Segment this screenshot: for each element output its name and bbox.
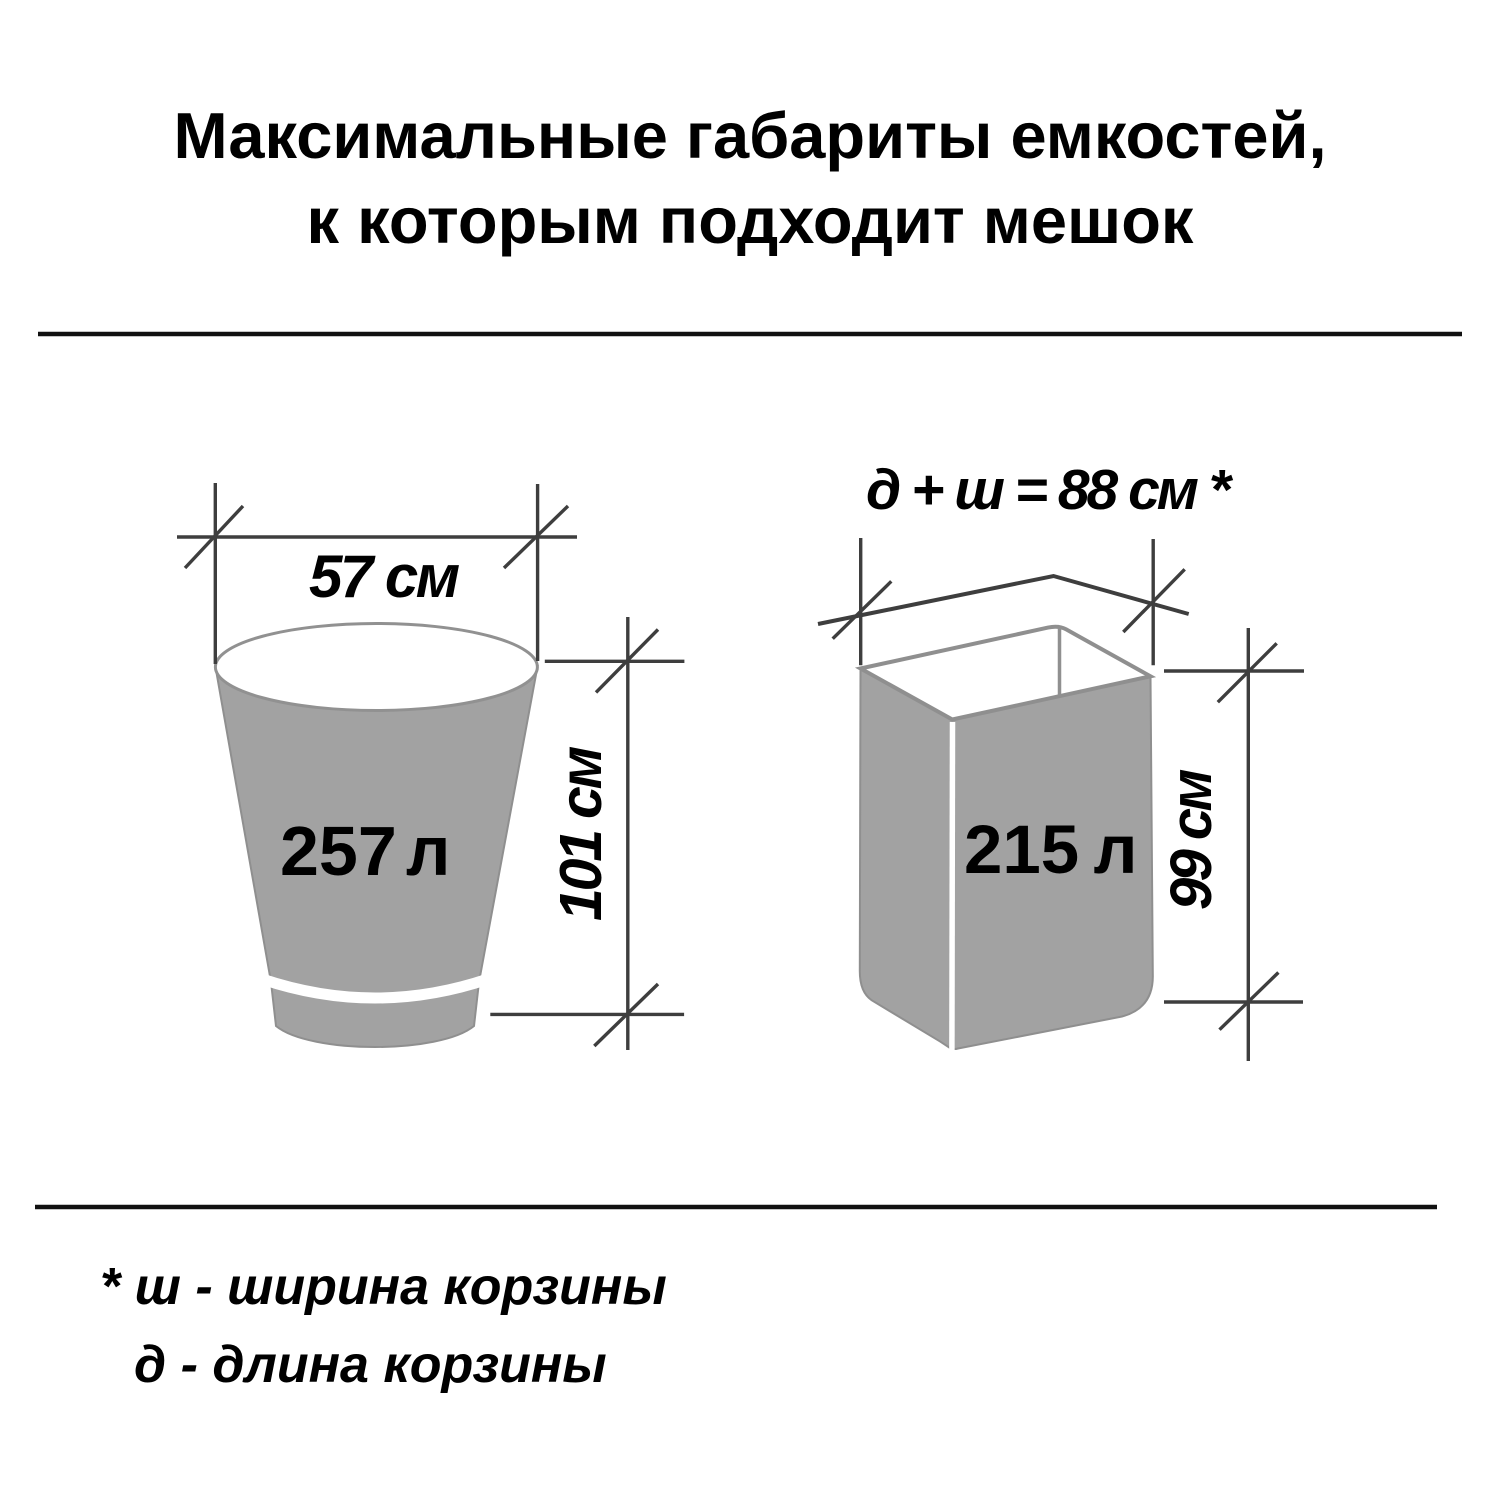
svg-text:д - длина корзины: д - длина корзины <box>134 1336 607 1394</box>
svg-text:Максимальные габариты емкостей: Максимальные габариты емкостей, <box>173 99 1326 172</box>
svg-text:99 см: 99 см <box>1159 770 1224 910</box>
svg-text:215: 215 <box>964 811 1079 888</box>
svg-text:57 см: 57 см <box>309 543 460 610</box>
svg-text:101 см: 101 см <box>548 746 614 921</box>
svg-text:л: л <box>406 812 450 890</box>
svg-text:д + ш = 88 см *: д + ш = 88 см * <box>866 458 1234 522</box>
svg-text:к которым подходит мешок: к которым подходит мешок <box>307 184 1194 257</box>
svg-text:* ш - ширина корзины: * ш - ширина корзины <box>100 1258 667 1316</box>
svg-text:257: 257 <box>280 812 397 890</box>
svg-text:л: л <box>1094 811 1138 888</box>
